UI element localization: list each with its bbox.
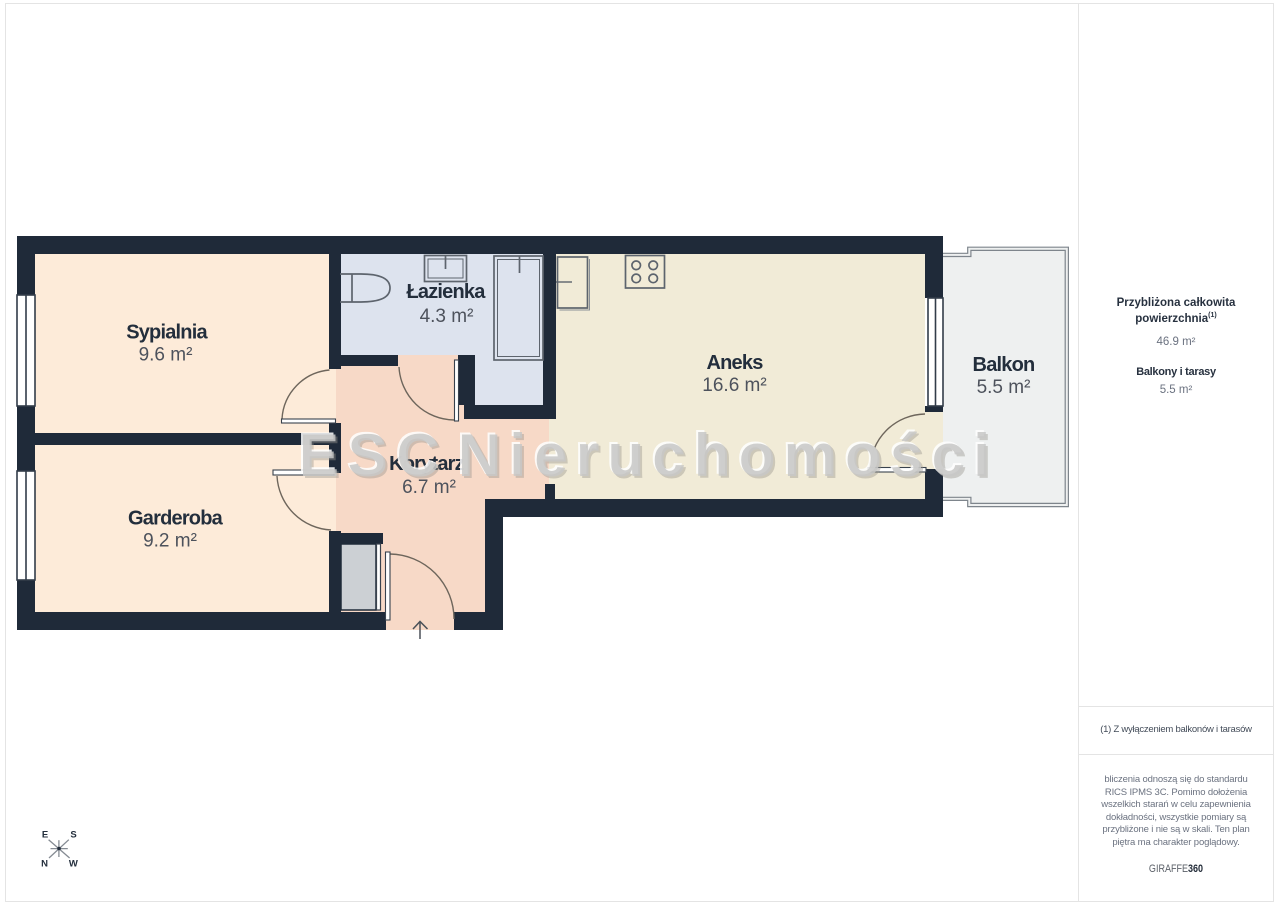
svg-text:5.5 m²: 5.5 m² xyxy=(977,377,1031,398)
svg-text:Sypialnia: Sypialnia xyxy=(126,322,208,344)
svg-text:16.6 m²: 16.6 m² xyxy=(702,375,766,396)
svg-text:W: W xyxy=(69,858,78,869)
svg-text:Garderoba: Garderoba xyxy=(128,508,224,530)
svg-text:Nieruchomości: Nieruchomości xyxy=(458,422,990,489)
svg-text:E: E xyxy=(42,830,48,841)
svg-text:ESC: ESC xyxy=(299,422,440,489)
svg-text:S: S xyxy=(70,830,76,841)
svg-text:N: N xyxy=(41,858,48,869)
svg-text:9.2 m²: 9.2 m² xyxy=(143,531,197,552)
svg-text:Balkon: Balkon xyxy=(973,354,1035,376)
svg-text:Łazienka: Łazienka xyxy=(406,281,486,303)
svg-text:9.6 m²: 9.6 m² xyxy=(139,345,193,366)
svg-text:Aneks: Aneks xyxy=(706,352,763,374)
svg-text:4.3 m²: 4.3 m² xyxy=(420,306,474,327)
